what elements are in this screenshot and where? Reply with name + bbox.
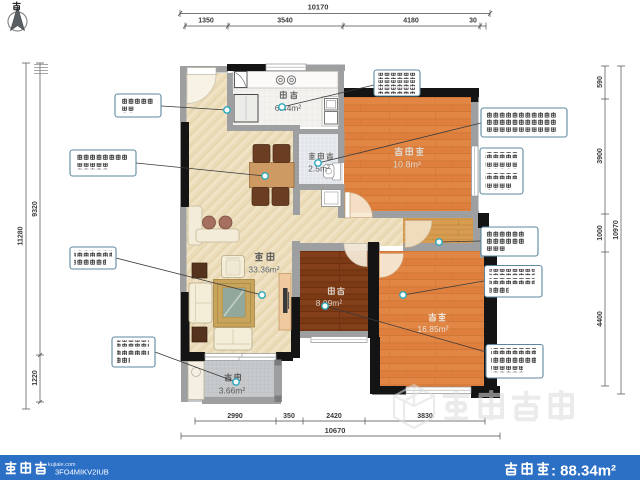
svg-text:10.8m²: 10.8m²: [393, 160, 421, 170]
svg-text:2420: 2420: [326, 413, 342, 420]
svg-text:33.36m²: 33.36m²: [248, 265, 279, 275]
svg-text:1000: 1000: [597, 225, 604, 241]
svg-text:1220: 1220: [32, 370, 39, 386]
svg-text:8.09m²: 8.09m²: [316, 298, 343, 308]
svg-text:10170: 10170: [308, 3, 329, 12]
svg-text:3.66m²: 3.66m²: [219, 386, 246, 396]
svg-text:3FO4MIKV2IUB: 3FO4MIKV2IUB: [55, 468, 109, 477]
svg-text:30: 30: [469, 18, 477, 25]
svg-text:3900: 3900: [597, 148, 604, 164]
svg-text:4180: 4180: [403, 18, 419, 25]
svg-text:1350: 1350: [198, 18, 214, 25]
svg-text:4400: 4400: [597, 311, 604, 327]
svg-text:2990: 2990: [227, 413, 243, 420]
svg-text:9320: 9320: [32, 201, 39, 217]
svg-text:16.85m²: 16.85m²: [417, 324, 448, 334]
svg-text:3540: 3540: [277, 18, 293, 25]
svg-text:: 88.34m²: : 88.34m²: [551, 463, 616, 480]
svg-text:350: 350: [283, 413, 295, 420]
svg-text:590: 590: [597, 76, 604, 88]
svg-text:10670: 10670: [325, 426, 346, 435]
svg-text:11280: 11280: [18, 226, 25, 245]
svg-text:10970: 10970: [613, 220, 620, 240]
